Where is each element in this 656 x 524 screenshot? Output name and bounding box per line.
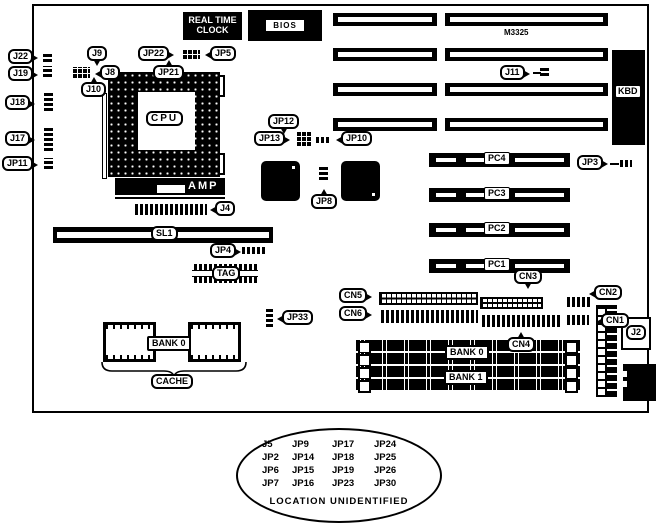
label-cache-bank0: BANK 0 [147,336,191,351]
connector-cn1 [565,315,589,325]
socket-tab [218,153,225,175]
label-j17: J17 [5,131,30,146]
isa-slot [333,13,437,26]
label-cache: CACHE [151,374,193,389]
label-sl1: SL1 [151,226,178,241]
bios-label: BIOS [266,20,304,31]
jumper-block-jp12-jp13 [297,132,311,146]
connector-j22 [43,52,52,64]
motherboard-diagram: REAL TIME CLOCK BIOS M3325 AMP [0,0,656,524]
connector-j17 [44,128,53,153]
jumper-block-jp21-jp22-jp5 [183,49,200,59]
amp-label: AMP [188,180,218,192]
jumper-name: JP26 [374,465,416,476]
label-j11: J11 [500,65,525,80]
jumper-name: J5 [262,439,292,450]
connector-j18 [44,92,53,113]
connector-j4 [133,204,207,215]
label-jp3: JP3 [577,155,603,170]
label-jp12: JP12 [268,114,299,129]
jumper-name: JP23 [332,478,374,489]
jumper-name: JP25 [374,452,416,463]
jumper-jp8 [319,167,328,182]
power-notch [621,381,627,387]
pin1-mark [372,193,375,196]
isa-slot [333,83,437,96]
label-cn2: CN2 [594,285,622,300]
jumper-jp10 [314,137,330,143]
chipset-ic [261,161,300,201]
label-j10: J10 [81,82,106,97]
label-jp4: JP4 [210,243,236,258]
jumper-name: JP14 [292,452,332,463]
jumper-name: JP17 [332,439,374,450]
connector-cn2 [565,297,590,307]
connector-jp11 [44,158,53,171]
label-cn1: CN1 [601,313,629,328]
label-jp21: JP21 [153,65,184,80]
label-cpu: CPU [146,111,183,126]
cache-sram-chip [188,322,241,362]
label-jp13: JP13 [254,131,285,146]
label-pc3: PC3 [484,187,510,200]
jumper-block-j8-j9-j10 [73,67,90,78]
jumper-name: JP24 [374,439,416,450]
chipset-ic [341,161,380,201]
jumper-name: JP16 [292,478,332,489]
power-notch [621,371,627,377]
label-pc2: PC2 [484,222,510,235]
label-pc4: PC4 [484,152,510,165]
label-jp5: JP5 [210,46,236,61]
amp-window [157,185,185,193]
label-kbd: KBD [615,85,641,98]
label-dram-bank0: BANK 0 [445,345,489,360]
jumper-name: JP7 [262,478,292,489]
label-j9: J9 [87,46,107,61]
label-pc1: PC1 [484,258,510,271]
jumper-name: JP19 [332,465,374,476]
connector-j11 [540,68,549,78]
label-j18: J18 [5,95,30,110]
rtc-label-line2: CLOCK [183,25,242,35]
label-jp10: JP10 [341,131,372,146]
label-tag: TAG [212,266,240,281]
amp-regulator: AMP [115,178,225,195]
label-j8: J8 [100,65,120,80]
label-j2: J2 [626,325,646,340]
connector-jp33 [266,309,273,329]
isa-slot [445,13,608,26]
connector-j11-lead [533,72,541,74]
unidentified-caption: LOCATION UNIDENTIFIED [236,496,442,507]
label-j22: J22 [8,49,33,64]
jumper-name: JP30 [374,478,416,489]
label-j19: J19 [8,66,33,81]
label-j4: J4 [215,201,235,216]
isa-slot [445,118,608,131]
jumper-name: JP2 [262,452,292,463]
jumper-name: JP6 [262,465,292,476]
zif-lever [102,93,107,179]
jumper-name: JP18 [332,452,374,463]
pin1-mark [292,166,295,169]
connector-cn6 [379,310,478,323]
label-cn5: CN5 [339,288,367,303]
label-dram-bank1: BANK 1 [444,370,488,385]
bios-chip: BIOS [248,10,322,41]
rtc-label-line1: REAL TIME [183,15,242,25]
board-marking: M3325 [504,28,528,37]
jumper-name: JP15 [292,465,332,476]
power-connector [623,364,656,401]
connector-j19 [43,66,52,79]
label-jp33: JP33 [282,310,313,325]
label-jp11: JP11 [2,156,33,171]
amp-underline [115,197,225,199]
label-cn3: CN3 [514,269,542,284]
connector-cn3 [480,297,543,309]
isa-slot [445,83,608,96]
label-jp8: JP8 [311,194,337,209]
connector-cn4 [480,315,562,327]
label-cn4: CN4 [507,337,535,352]
unidentified-jumper-table: J5 JP9 JP17 JP24 JP2 JP14 JP18 JP25 JP6 … [262,439,416,489]
label-cn6: CN6 [339,306,367,321]
connector-cn5 [379,292,478,305]
isa-slot [333,118,437,131]
jumper-name: JP9 [292,439,332,450]
isa-slot [333,48,437,61]
socket-tab [218,75,225,97]
isa-slot [445,48,608,61]
rtc-chip: REAL TIME CLOCK [183,12,242,40]
connector-jp3 [618,160,632,167]
